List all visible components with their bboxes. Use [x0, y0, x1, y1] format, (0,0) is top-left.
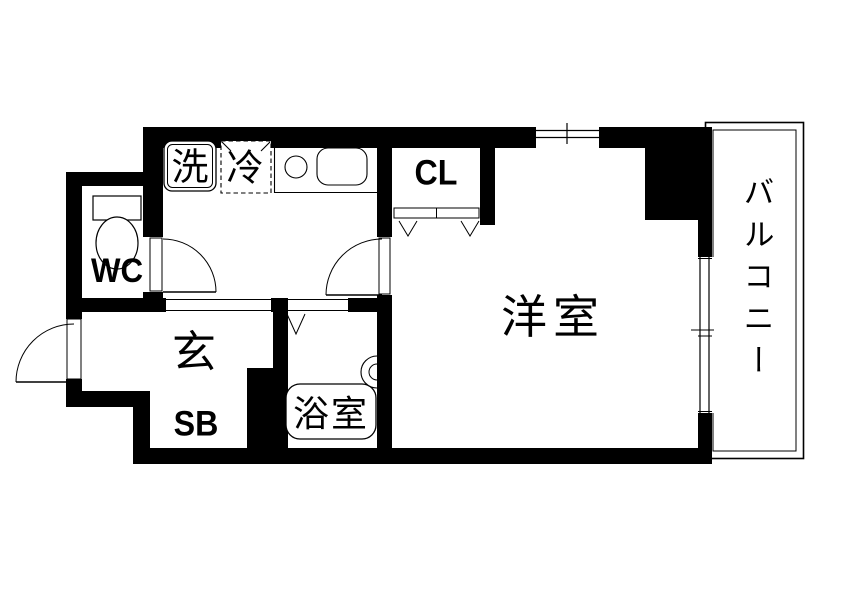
sb-left-wall: [133, 391, 150, 448]
closet-fold-mark-right: [461, 221, 479, 236]
shoe-box-label: SB: [174, 407, 219, 442]
floorplan-drawing: [0, 0, 850, 597]
entrance-door: [16, 319, 81, 382]
washing-machine-label: 洗: [172, 149, 209, 186]
bathroom-folding-door-icon: [287, 314, 305, 334]
right-wall-upper: [698, 220, 712, 257]
refrigerator-label: 冷: [227, 150, 264, 187]
burner-icon: [285, 156, 307, 178]
bathroom-label: 浴室: [293, 396, 369, 432]
west-left-wall-upper: [377, 127, 392, 237]
sb-bath-block: [247, 368, 288, 450]
top-right-pillar: [645, 127, 712, 220]
floorplan: 洗 冷 WC CL 玄 SB 浴室 洋室 バルコニー: [0, 0, 850, 597]
wc-door: [143, 237, 216, 292]
wc-door-arc: [163, 239, 216, 292]
hall-genkan-opening: [165, 298, 272, 312]
bathroom-opening: [287, 300, 348, 335]
hall-bottom-wall-a: [66, 298, 165, 312]
wc-room-label: WC: [91, 254, 143, 288]
west-left-wall-lower: [377, 295, 392, 448]
left-wall-upper: [66, 172, 82, 319]
balcony-window: [691, 257, 714, 413]
western-room-door-arc: [326, 239, 382, 295]
kitchen-counter-icon: [275, 141, 378, 193]
walls: [66, 127, 712, 464]
wc-kitchen-wall: [143, 127, 163, 237]
closet-label: CL: [415, 156, 458, 191]
top-window: [536, 123, 599, 149]
balcony-label: バルコニー: [741, 176, 772, 386]
bottom-wall: [133, 448, 712, 464]
genkan-bath-wall: [273, 298, 288, 370]
closet-fold-mark-left: [399, 221, 417, 236]
western-room-door: [326, 237, 392, 295]
western-room-label: 洋室: [501, 294, 605, 340]
closet-bifold-door: [394, 208, 479, 236]
cl-right-wall: [480, 127, 495, 225]
entrance-door-arc: [16, 324, 74, 382]
genkan-room-label: 玄: [172, 331, 216, 375]
sink-icon: [317, 148, 367, 185]
